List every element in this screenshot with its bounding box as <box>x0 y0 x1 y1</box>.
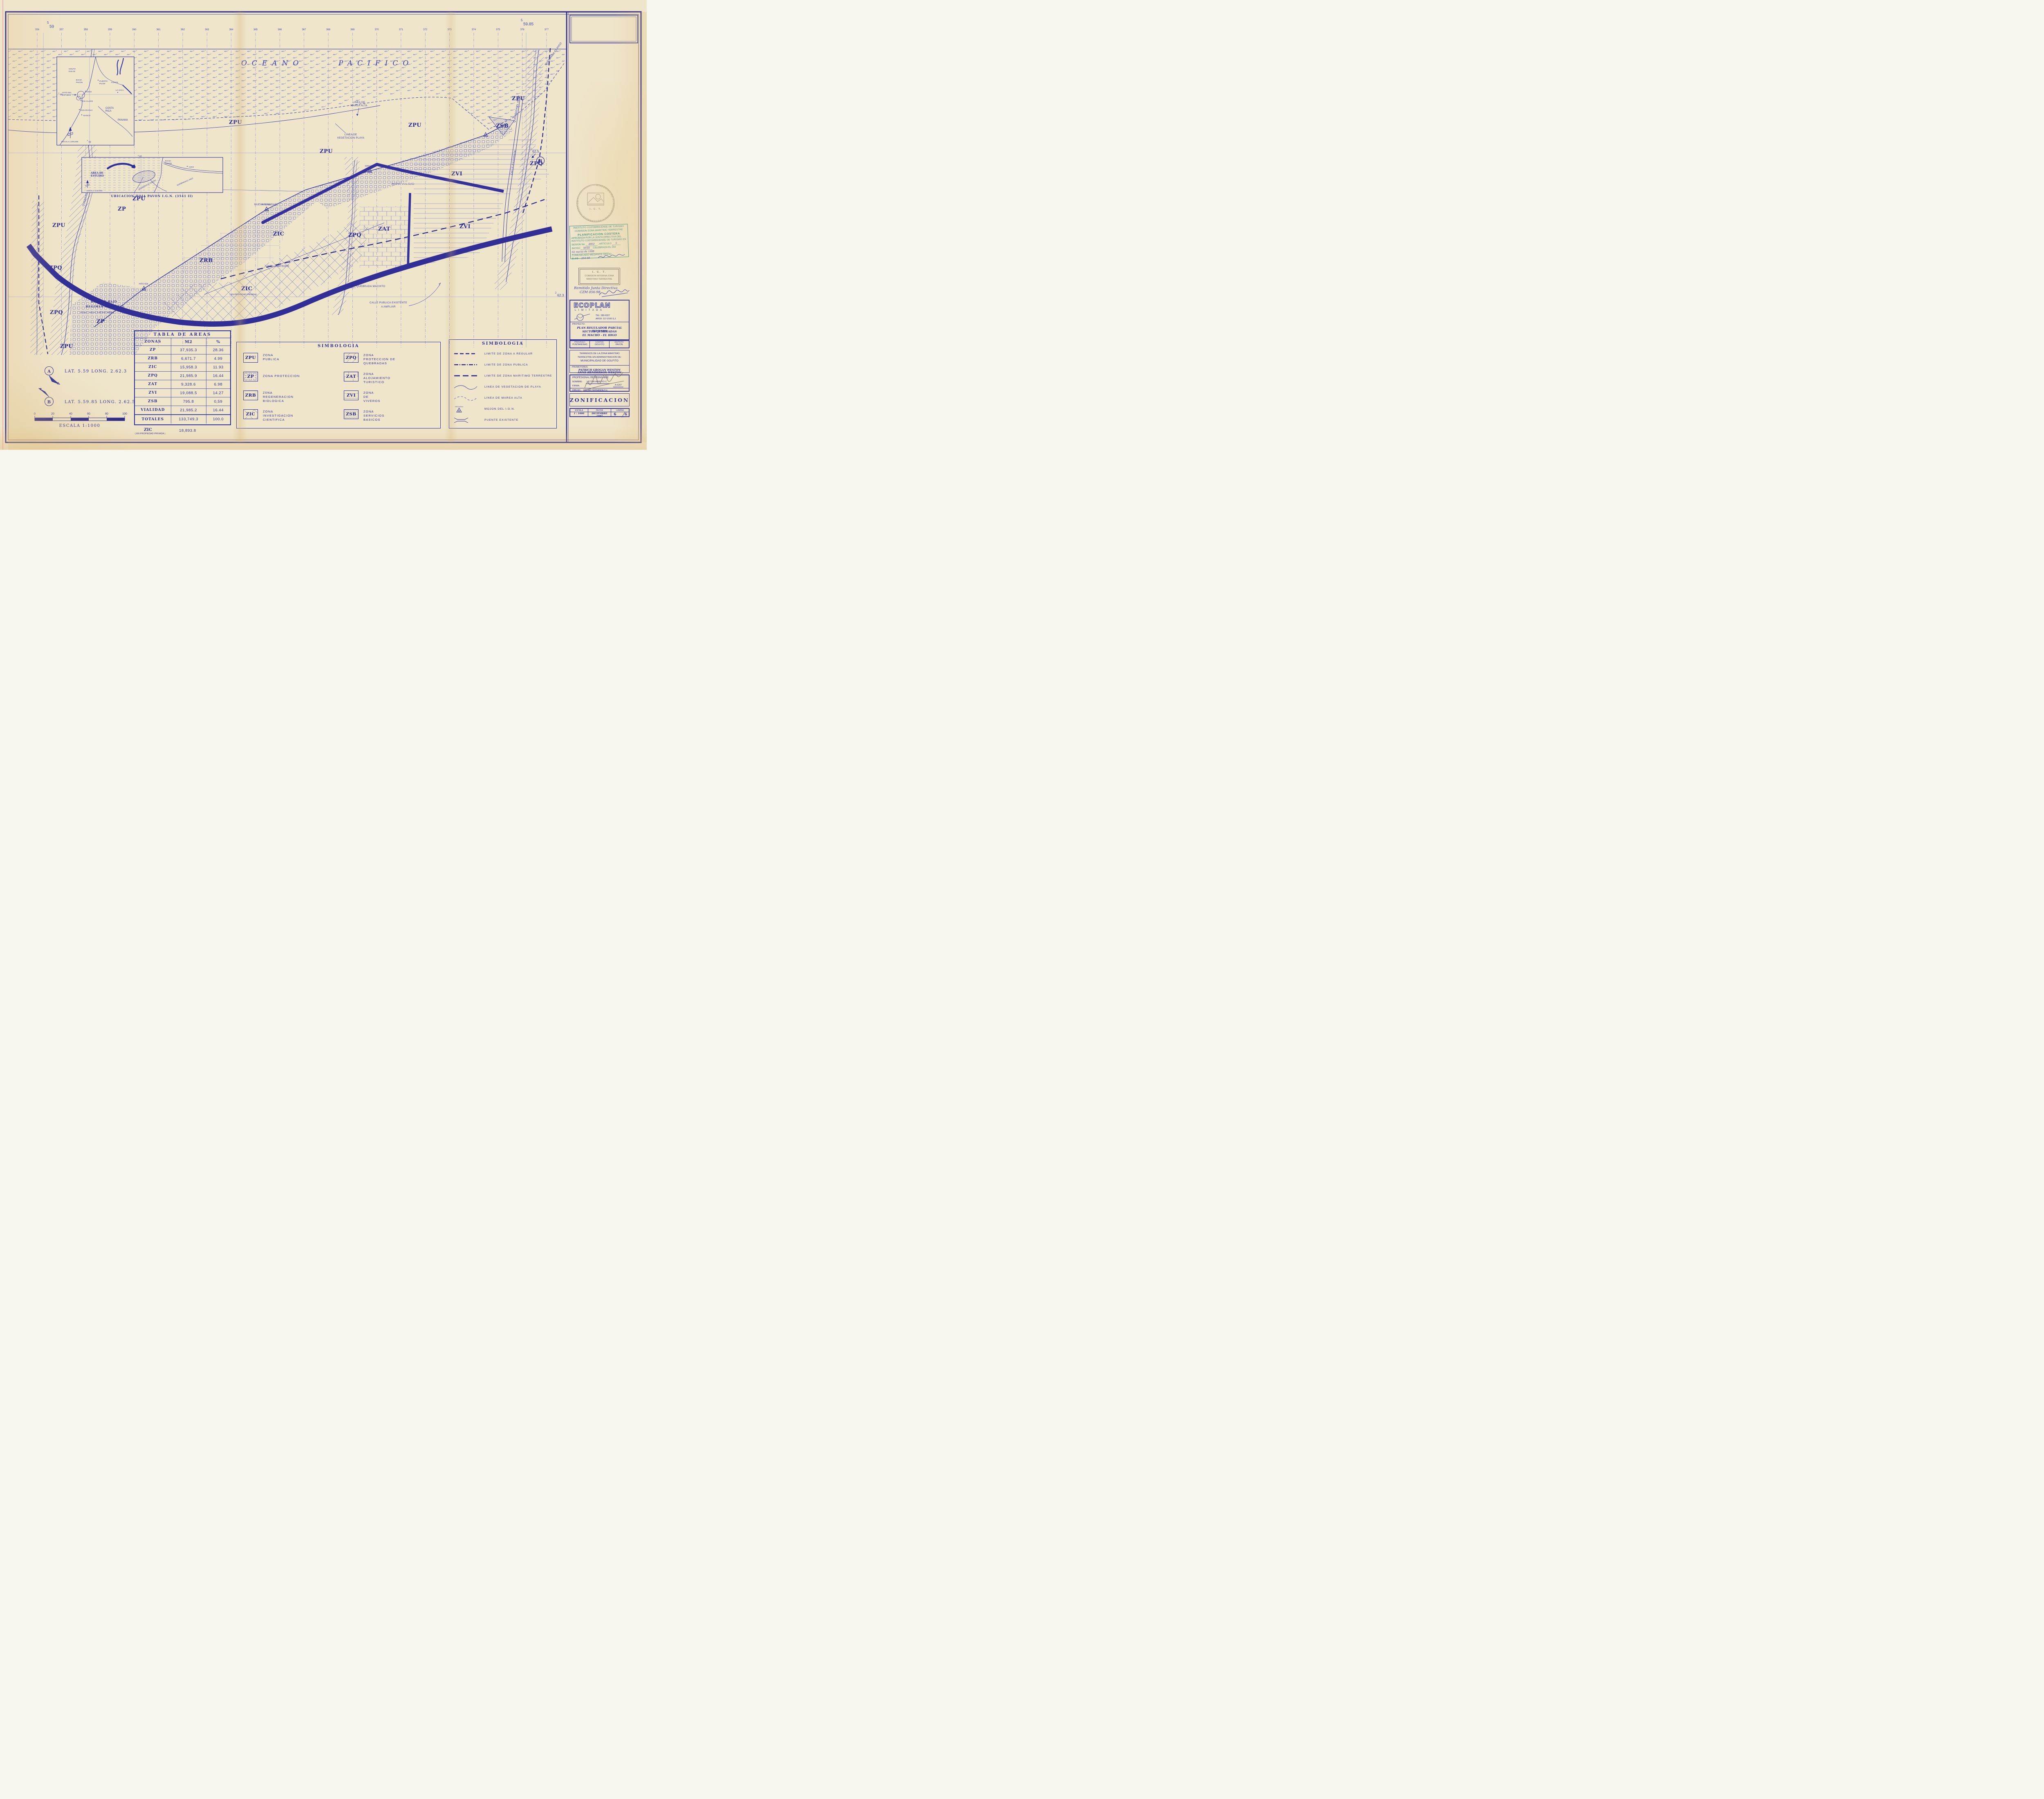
svg-text:80: 80 <box>105 413 108 415</box>
ict-circular-seal: DIRECCION DE PLANEAMIENTO Y DESARROLLO T… <box>577 184 614 222</box>
zone-label-zpq: ZPQ <box>348 232 361 238</box>
ocean-label-2: PACIFICO <box>338 59 413 67</box>
svg-text:60: 60 <box>60 94 63 96</box>
signature-squiggle <box>598 287 630 299</box>
terrenos-line: TERRENOS DE LA ZONA MARITIMO <box>570 352 629 356</box>
ecoplan-logo-icon <box>574 313 592 322</box>
legend-line-mojon: HITO IGN # MOJON DEL I.G.N. <box>453 405 515 413</box>
ecoplan-limitada: L I M I T A D A <box>575 309 603 312</box>
table-row: ZAT9,328.66.98 <box>135 380 230 389</box>
inset1-lavaca: LA VACA <box>116 89 124 92</box>
grid-number: 363 <box>205 29 209 31</box>
note-a-letter: A <box>47 370 51 374</box>
legend-item-zpq: ZPQ ZONAPROTECCION DEQUEBRADAS <box>344 353 395 366</box>
grid-number: 367 <box>302 29 307 31</box>
grid-number: 375 <box>496 29 500 31</box>
seal-ict-text: I. C. T. <box>589 208 601 211</box>
inset-location-map: GOLFO DULCE BAHIA PAVON PUERTO PILON CON… <box>57 57 134 145</box>
bosque-ref: (Tomo 7, Folio 47, A.89 DGF, MINAE) <box>80 312 114 314</box>
inset2-caption: UBICACION HOJA PAVON I.G.N. (3541 II) <box>111 194 193 198</box>
bosque-label: BOSQUE BAJO <box>91 300 117 303</box>
nombre-label: NOMBRE: <box>572 381 583 383</box>
zone-label-zp: ZP <box>118 206 126 212</box>
inset1-costarica: COSTA <box>105 107 114 110</box>
ubicacion-row: PROVINCIAPUNTARENAS CANTONGOLFITO DISTRI… <box>569 340 630 348</box>
zone-label-zpq: ZPQ <box>50 310 63 316</box>
grid-number: 357 <box>59 29 64 31</box>
promotor-name: ANNE HENDERSON WESTON <box>570 371 629 374</box>
tabla-extra-nota: ( EN PROPIEDAD PRIVADA ) <box>135 433 166 435</box>
tabla-header-pct: % <box>206 338 230 345</box>
svg-text:0: 0 <box>34 413 36 415</box>
lamina-total: 6 <box>625 413 627 417</box>
wave-line-icon <box>453 383 479 391</box>
inset2-area: AREA DE <box>90 172 103 175</box>
grid-number: 373 <box>448 29 452 31</box>
grid-number: 370 <box>375 29 379 31</box>
scale-label: ESCALA 1:1000 <box>59 424 101 428</box>
zone-label-zp: ZP <box>96 319 105 325</box>
svg-text:20: 20 <box>51 413 54 415</box>
coordinate-notes: A LAT. 5.59 LONG. 2.62.3 B LAT. 5.59.85 … <box>39 367 135 406</box>
inset1-escala: ESCALA 1:200,000 <box>61 141 78 143</box>
svg-text:PILON: PILON <box>99 83 105 85</box>
zone-label-zrb: ZRB <box>199 258 213 264</box>
fecha-cell: FECHA DICIEMBRE 1997 <box>588 409 612 416</box>
paper-sheet: 3563573583593603613623633643653663673683… <box>0 0 647 450</box>
tabla-extra-m2: 18,893.8 <box>179 428 196 433</box>
lat-left-val: 59 <box>49 25 54 29</box>
inset2-higo: HIGO <box>189 166 194 168</box>
prof-title: PROFESIONAL RESPONSABLE <box>572 377 609 379</box>
table-row: ZPQ21,985.916.44 <box>135 372 230 380</box>
leyenda-zonas-title: SIMBOLOGIA <box>237 342 440 348</box>
zone-label-zpu: ZPU <box>408 122 421 128</box>
svg-text:RICA: RICA <box>105 110 111 112</box>
legend-line-maritimo: LIMITE DE ZONA MARITIMO TERRESTRE <box>453 372 552 380</box>
bridge-icon <box>453 416 479 424</box>
marea-alta-label: MAREA ALTA <box>350 104 368 107</box>
zone-label-zpu: ZPU <box>52 222 65 229</box>
leyenda-lineas: SIMBOLOGIA LIMITE DE ZONA A REGULAR LIMI… <box>449 339 557 428</box>
zone-label-zpq: ZPQ <box>49 265 62 271</box>
footer-row: ESCALA 1 : 1000 FECHA DICIEMBRE 1997 LAM… <box>569 408 630 417</box>
zat-swatch: ZAT <box>344 372 359 381</box>
terrenos-line: MUNICIPALIDAD DE GOLFITO <box>570 359 629 363</box>
handwritten-inciso: XVIII <box>581 247 592 250</box>
zonificacion-block: ZONIFICACION <box>569 393 630 406</box>
tabla-title: TABLA DE AREAS <box>135 331 230 338</box>
svg-text:ESTUDIO: ESTUDIO <box>62 94 71 96</box>
legend-item-zp: ZP ZONA PROTECCION <box>243 372 300 381</box>
svg-text:ESTUDIO: ESTUDIO <box>91 175 104 177</box>
handwritten-sjd: 254-98 <box>580 257 592 260</box>
dashdot-line-icon <box>453 361 479 369</box>
tabla-extra-zona: ZIC <box>144 428 152 432</box>
zone-label-zsb: ZSB <box>496 123 509 129</box>
inset1-higo: HIGO <box>87 91 92 93</box>
terrenos-line: TERRESTRE EN ADMINISTRACION DE: <box>570 356 629 359</box>
provincia-cell: PROVINCIAPUNTARENAS <box>570 341 590 348</box>
nombre-value: VICTOR ARROYO C. <box>586 381 610 384</box>
legend-line-marea: LINEA DE MAREA ALTA <box>453 394 522 402</box>
ecoplan-apdo: APDO: 117-2100 S.J. <box>596 318 616 320</box>
inset1-golfo: GOLFO <box>69 68 76 70</box>
table-row: VIALIDAD21,985.216.44 <box>135 406 230 415</box>
note-b-text: LAT. 5.59.85 LONG. 2.62.5 <box>65 400 135 404</box>
ecoplan-logo-text: ECOPLAN <box>574 301 611 309</box>
vegetacion-label: VEGETACION PLAYA <box>337 137 365 139</box>
zone-zat-region <box>360 206 410 268</box>
tabla-header-m2: M2 <box>171 338 206 345</box>
signature-squiggle <box>597 252 626 260</box>
firma-label: FIRMA: <box>572 385 580 387</box>
note-b-letter: B <box>47 400 51 405</box>
legend-item-zvi: ZVI ZONADEVIVEROS <box>344 390 381 403</box>
table-row-totales: TOTALES 133,749.3 100.0 <box>135 415 230 424</box>
dibujo-value: OSCAR FERNANDEZ H. <box>583 389 607 392</box>
zone-label-zvi: ZVI <box>451 171 462 177</box>
zsb-swatch: ZSB <box>344 409 359 419</box>
grid-number: 372 <box>423 29 428 31</box>
handwritten-sesion: 4802 <box>586 242 597 246</box>
zrb-swatch: ZRB <box>243 390 258 400</box>
inset1-panama: PANAMA <box>118 119 128 121</box>
inset1-bahia: BAHIA <box>76 79 82 81</box>
profesional-block: PROFESIONAL RESPONSABLE NOMBRE: VICTOR A… <box>569 375 630 392</box>
inset1-conte: CONTE <box>111 81 118 84</box>
svg-text:5: 5 <box>138 155 139 157</box>
grid-number: 376 <box>520 29 525 31</box>
grid-number: 359 <box>108 29 112 31</box>
inset2-bahia: BAHIA <box>165 160 171 162</box>
hito-label: HITO IGN <box>139 283 148 285</box>
grid-number: 371 <box>399 29 403 31</box>
vegetacion-label: LINEA DE <box>345 133 357 136</box>
grid-number: 374 <box>472 29 476 31</box>
lat-right-sup: 5 <box>521 18 523 22</box>
zone-label-zic: ZIC <box>273 231 284 237</box>
nueva-vialidad-label: NUEVA VIALIDAD <box>392 183 415 186</box>
zone-label-zvi: ZVI <box>459 224 471 230</box>
ocean-label-1: OCEANO <box>241 59 303 67</box>
proyecto-line: EL MACHO - EL HIGO <box>570 334 629 337</box>
zone-label-zat: ZAT <box>378 226 390 232</box>
legend-item-zpu: ZPU ZONAPUBLICA <box>243 353 280 363</box>
table-row: ZRB6,671.74.99 <box>135 354 230 363</box>
linea-limitrofe-label: LINEA LIMITROFE <box>266 265 289 268</box>
lamina-cell: LAMINA 6 6 <box>611 409 629 416</box>
inset-area-estudio-map: BAHIA PAVON AREA DE ESTUDIO HIGO QUEBRAD… <box>82 155 223 198</box>
wave-dash-line-icon <box>453 394 479 402</box>
zone-label-zpu: ZPU <box>60 343 73 350</box>
escala-cell: ESCALA 1 : 1000 <box>570 409 588 416</box>
grid-number: 361 <box>157 29 161 31</box>
grid-number: 364 <box>229 29 234 31</box>
distrito-cell: DISTRITOPAVON <box>610 341 629 348</box>
lat-left-sup: 5 <box>47 21 49 25</box>
legend-line-regular: LIMITE DE ZONA A REGULAR <box>453 350 533 358</box>
inset2-escala: ESCALA 1:50.000 <box>87 190 103 192</box>
lat-right-val: 59.85 <box>523 22 533 27</box>
leyenda-lineas-title: SIMBOLOGIA <box>449 340 556 346</box>
legend-line-publica: LIMITE DE ZONA PUBLICA <box>453 361 528 369</box>
grid-number: 360 <box>132 29 137 31</box>
inset1-nicaragua: NICARAGUA <box>81 109 93 112</box>
stamp-ict-interna: I. C. T. COMISION INTERNA ZONA MARITIMO … <box>580 269 619 284</box>
grid-number: 358 <box>84 29 88 31</box>
inset1-puerto: PUERTO <box>99 80 108 83</box>
table-row: ZVI19,088.514.27 <box>135 389 230 397</box>
inset1-banco: BANCO <box>83 114 90 117</box>
grid-number: 377 <box>545 29 549 31</box>
grid-number: 366 <box>278 29 282 31</box>
inset1-sitio: SITIO DEL <box>62 92 72 94</box>
svg-text:60: 60 <box>89 141 91 144</box>
svg-text:PAVON: PAVON <box>76 81 83 84</box>
y-lower-sup: 2 <box>555 292 557 294</box>
y-lower-val: 62.3 <box>557 293 564 297</box>
scale-bar: 0 20 40 60 80 100 ESCALA 1:1000 <box>34 413 127 428</box>
inset1-rioclaro: RIO CLARO <box>82 100 93 103</box>
zic-swatch: ZIC <box>243 409 258 419</box>
zone-label-zpu: ZPU <box>320 148 333 155</box>
dibujo-label: DIBUJO: <box>572 389 581 392</box>
zone-label-zic: ZIC <box>241 286 252 292</box>
grid-number: 368 <box>326 29 331 31</box>
legend-item-zic: ZIC ZONAINVESTIGACIONCIENTIFICA <box>243 409 293 422</box>
svg-text:60: 60 <box>139 155 142 158</box>
note-a-text: LAT. 5.59 LONG. 2.62.3 <box>65 369 127 374</box>
dash-line-icon <box>453 350 479 358</box>
calle-publica-label: A AMPLIAR <box>381 305 396 308</box>
legend-line-vegetacion: LINEA DE VEGETACION DE PLAYA <box>453 383 541 391</box>
stamp-aprobacion-ict: INSTITUTO COSTARRICENSE DE TURISMO COMIS… <box>569 224 629 259</box>
tabla-header-zonas: ZONAS <box>135 338 171 345</box>
leyenda-zonas: SIMBOLOGIA ZPU ZONAPUBLICA ZP ZONA PROTE… <box>236 342 441 428</box>
codigo-value: A-6267 <box>613 384 623 387</box>
ecoplan-block: ECOPLAN L I M I T A D A TEL: 280-9327 AP… <box>569 300 630 340</box>
proyecto-label: PROYECTO: <box>572 323 585 325</box>
grid-number: 369 <box>350 29 355 31</box>
svg-text:PAVON: PAVON <box>165 162 172 165</box>
calle-publica-label: CALLE PUBLICA EXISTENTE <box>370 301 407 304</box>
grid-number: 365 <box>253 29 258 31</box>
legend-item-zsb: ZSB ZONASERVICIOSBASICOS <box>344 409 385 422</box>
table-row: ZSB795.80,59 <box>135 397 230 406</box>
stamp-line: MARITIMO TERRESTRE <box>580 278 619 281</box>
zone-label-zpu: ZPU <box>229 119 242 126</box>
zpu-swatch: ZPU <box>243 353 258 363</box>
connector-road <box>408 193 410 267</box>
grid-number: 362 <box>181 29 185 31</box>
svg-text:DULCE: DULCE <box>69 70 75 73</box>
terrenos-block: TERRENOS DE LA ZONA MARITIMO TERRESTRE E… <box>569 350 630 373</box>
handwritten-articulo: 5 <box>612 242 620 245</box>
tabla-de-areas: TABLA DE AREAS ZONAS M2 % ZP37,935.328.3… <box>134 330 231 425</box>
table-row: ZIC15,958.311.93 <box>135 363 230 372</box>
nueva-vialidad-label: NUEVA VIALIDAD <box>254 203 277 206</box>
legend-line-puente: PUENTE EXISTENTE <box>453 416 518 424</box>
legend-item-zrb: ZRB Z0NAREGENERACIONBIOLOGICA <box>243 390 294 403</box>
svg-text:60: 60 <box>87 413 90 415</box>
lamina-title: ZONIFICACION <box>570 397 630 403</box>
table-row: ZP37,935.328.36 <box>135 346 230 354</box>
svg-text:B: B <box>539 159 542 164</box>
scanned-zoning-plan: 3563573583593603613623633643653663673683… <box>0 0 647 450</box>
mojon-icon: HITO IGN # <box>453 405 479 413</box>
proyecto-line: SECTOR QUEBRADAS <box>570 330 629 333</box>
canton-cell: CANTONGOLFITO <box>590 341 610 348</box>
svg-text:100: 100 <box>122 413 127 415</box>
stamp-line: COMISION INTERNA ZONA <box>580 274 619 278</box>
zp-swatch: ZP <box>243 372 258 381</box>
zpq-swatch: ZPQ <box>344 353 359 363</box>
ecoplan-tel: TEL: 280-9327 <box>596 314 610 317</box>
legend-item-zat: ZAT ZONAALOJAMIENTOTURISTICO <box>344 372 390 384</box>
svg-text:40: 40 <box>69 413 72 415</box>
svg-text:HITO IGN #: HITO IGN # <box>455 406 464 408</box>
zic-privada-note: ( EN PROPIEDAD PRIVADA ) <box>230 294 257 296</box>
quebrada-machito-label: QUEBRADA MACHITO <box>356 285 385 288</box>
zvi-swatch: ZVI <box>344 390 359 400</box>
longdash-line-icon <box>453 372 479 380</box>
grid-number: 356 <box>35 29 40 31</box>
stamp-line: I. C. T. <box>580 270 619 274</box>
bosque-label: REGIMEN FORESTAL <box>86 305 125 308</box>
marea-alta-label: LINEA DE <box>353 101 365 104</box>
